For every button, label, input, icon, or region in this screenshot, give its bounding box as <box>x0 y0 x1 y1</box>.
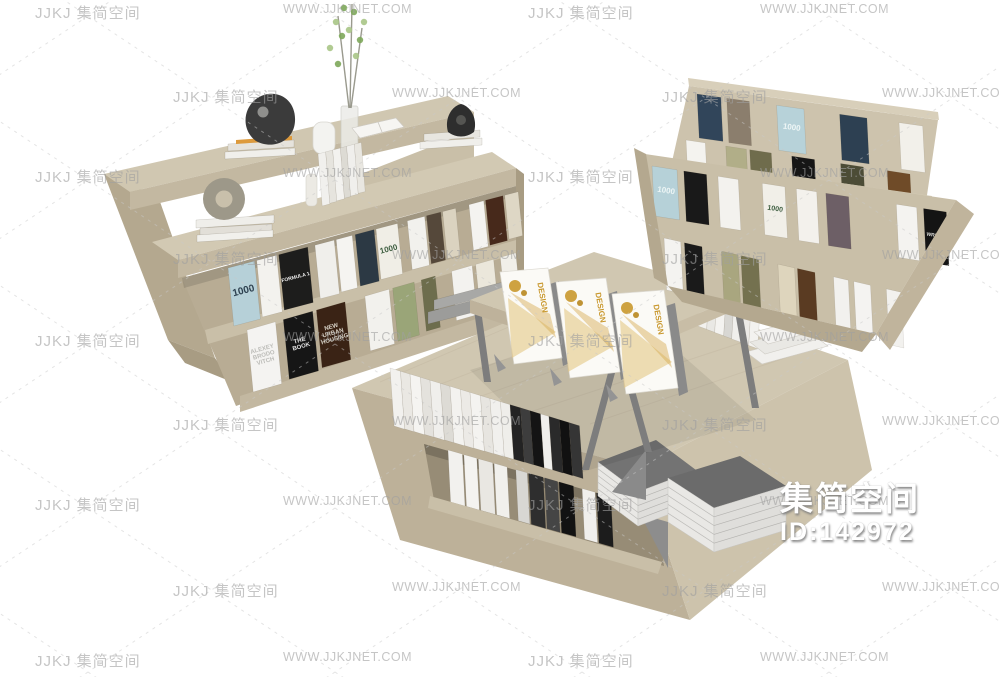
book <box>697 94 723 141</box>
book <box>582 489 598 543</box>
book <box>826 193 851 249</box>
book <box>529 473 546 528</box>
book <box>545 478 561 533</box>
book <box>448 450 465 506</box>
book <box>727 98 752 146</box>
book <box>840 114 870 164</box>
cylinder-vase <box>306 174 317 206</box>
ceramic-jar <box>313 122 335 154</box>
model-preview-image: 1000FORMULA 11000ALEXEYBRODOVITCHTHEBOOK… <box>0 0 1000 677</box>
book <box>684 171 709 225</box>
scene-svg: 1000FORMULA 11000ALEXEYBRODOVITCHTHEBOOK… <box>0 0 1000 677</box>
book <box>516 470 530 525</box>
book <box>664 238 683 294</box>
shelf-top-decor <box>225 4 482 159</box>
book <box>796 189 819 244</box>
black-sculpture <box>246 94 296 145</box>
book <box>896 204 919 261</box>
book <box>899 123 925 173</box>
book <box>464 455 480 511</box>
book <box>365 289 395 351</box>
book <box>494 463 510 518</box>
book <box>718 176 741 230</box>
book <box>559 482 576 537</box>
book <box>478 459 495 515</box>
